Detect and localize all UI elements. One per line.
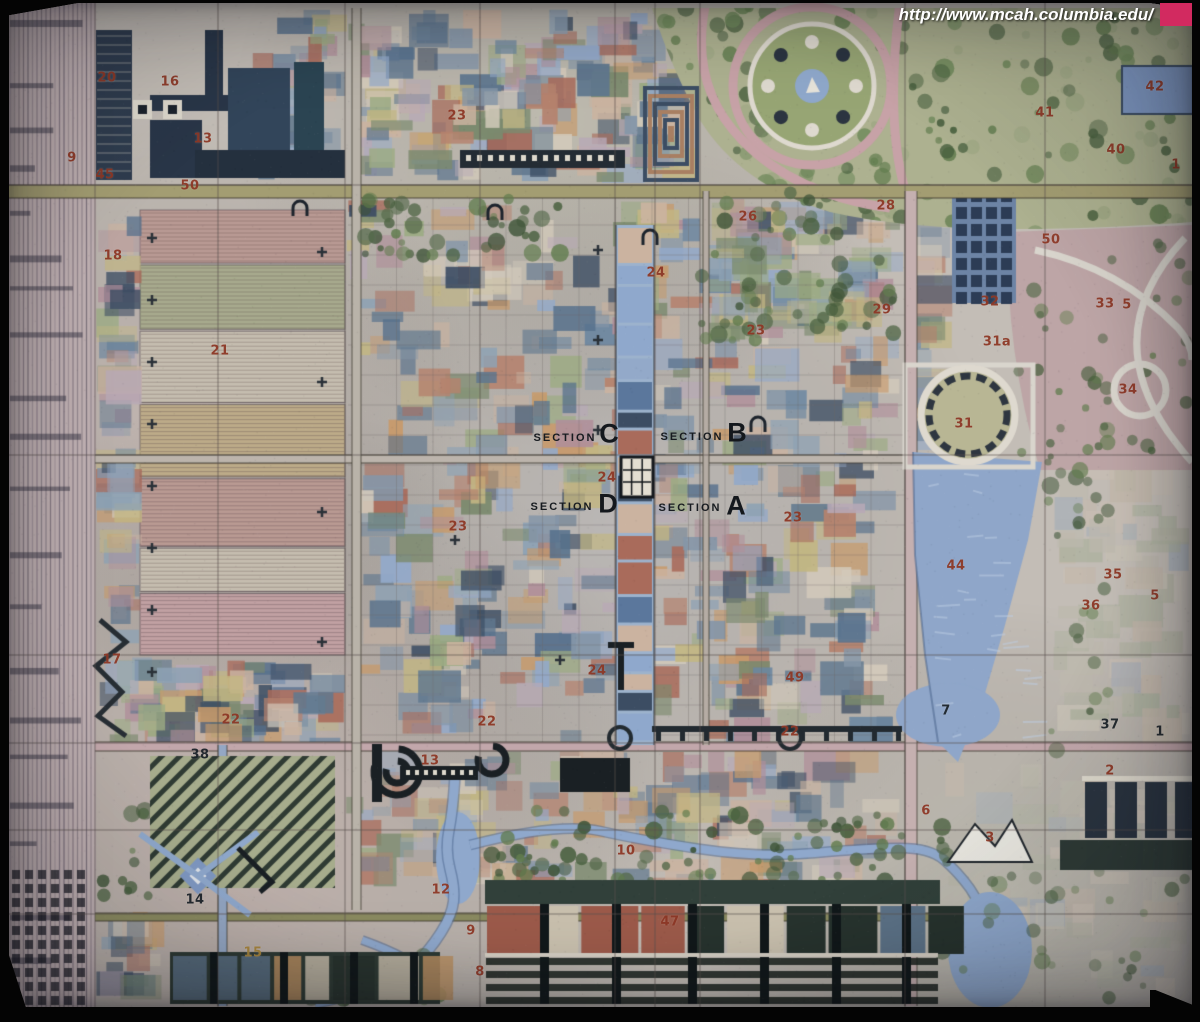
frame-edge-right <box>1192 0 1200 1022</box>
section-word-B: SECTION <box>661 431 724 443</box>
section-word-D: SECTION <box>531 501 594 513</box>
frame-corner-bottomleft <box>0 930 26 1010</box>
slide-scan-frame: 2016139455018212324262829234241401503233… <box>0 0 1200 1022</box>
section-word-C: SECTION <box>534 432 597 444</box>
frame-corner-topleft <box>0 0 90 16</box>
section-word-A: SECTION <box>659 502 722 514</box>
watermark: http://www.mcah.columbia.edu/ <box>899 3 1192 26</box>
section-letter-C: C <box>599 419 619 450</box>
frame-edge-bottom <box>0 1007 1200 1022</box>
frame-edge-left <box>0 0 9 1022</box>
watermark-url: http://www.mcah.columbia.edu/ <box>899 5 1153 25</box>
section-letter-B: B <box>727 418 747 449</box>
frame-corner-bottomright <box>1150 990 1200 1010</box>
watermark-color-square <box>1160 3 1192 26</box>
section-label-layer: SECTIONCSECTIONBSECTIONDSECTIONA <box>0 0 1200 1022</box>
section-letter-D: D <box>598 489 618 520</box>
section-letter-A: A <box>726 491 746 522</box>
